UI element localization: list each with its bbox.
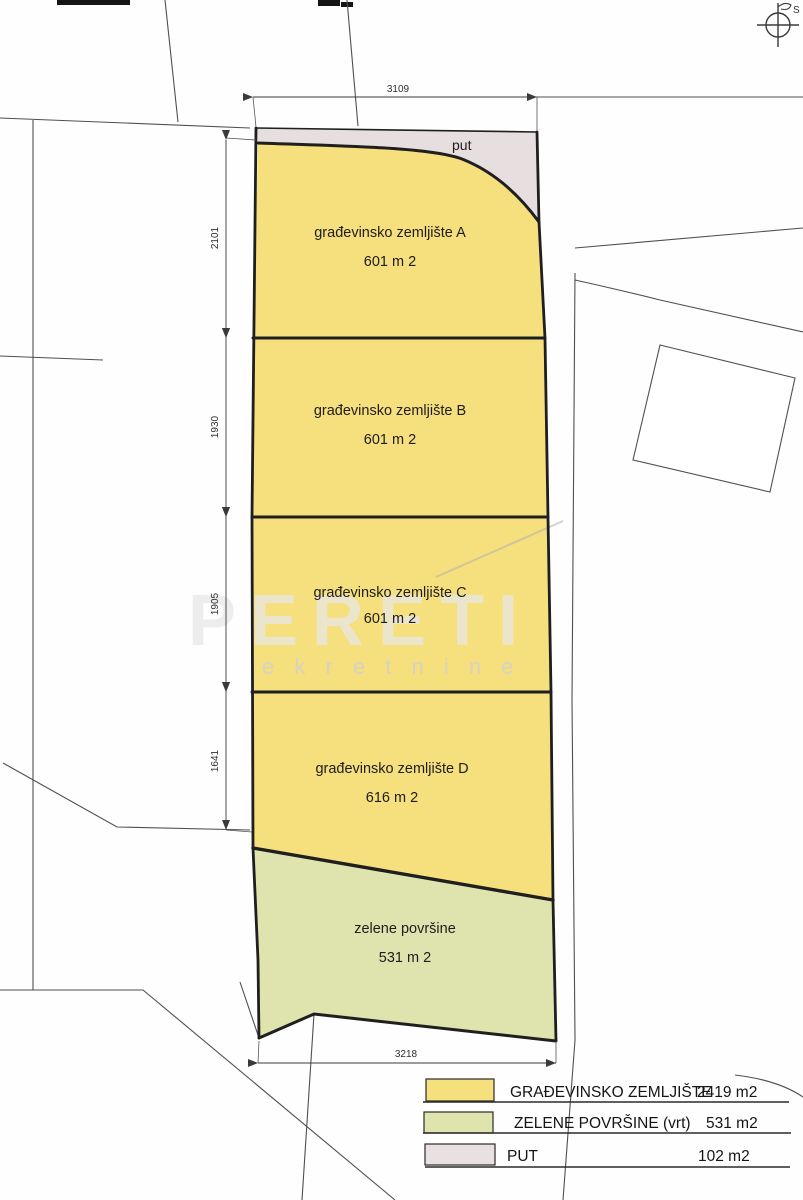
building-outline	[633, 345, 795, 492]
legend-label-green: ZELENE POVRŠINE (vrt)	[514, 1115, 691, 1132]
parcel-d-name: građevinsko zemljište D	[315, 761, 468, 777]
legend-row-building: GRAĐEVINSKO ZEMLJIŠTE 2419 m2	[423, 1079, 789, 1102]
cadastral-map: PERETI e k r e t n i n e	[0, 0, 803, 1200]
north-label: S	[793, 5, 800, 16]
legend-value-building: 2419 m2	[697, 1084, 757, 1101]
scan-marks	[57, 0, 353, 7]
dimension-left-value-b: 1930	[210, 415, 221, 438]
parcel-put-label: put	[452, 137, 472, 153]
legend-value-green: 531 m2	[706, 1115, 758, 1132]
legend-swatch-green	[424, 1112, 493, 1133]
parcel-c-area: 601 m 2	[364, 611, 416, 627]
parcel-b-name: građevinsko zemljište B	[314, 403, 466, 419]
parcel-a-area: 601 m 2	[364, 254, 416, 270]
parcel-b	[252, 338, 548, 517]
parcel-green-name: zelene površine	[354, 921, 456, 937]
parcel-green-area: 531 m 2	[379, 950, 431, 966]
dimension-left-value-d: 1641	[210, 749, 221, 772]
parcel-c-name: građevinsko zemljište C	[313, 585, 466, 601]
legend-label-building: GRAĐEVINSKO ZEMLJIŠTE	[510, 1084, 712, 1101]
legend-label-road: PUT	[507, 1148, 539, 1165]
legend: GRAĐEVINSKO ZEMLJIŠTE 2419 m2 ZELENE POV…	[423, 1079, 791, 1167]
parcel-b-area: 601 m 2	[364, 432, 416, 448]
dimension-bottom-value: 3218	[395, 1049, 418, 1060]
dimension-top-value: 3109	[387, 84, 410, 95]
watermark-subtext: e k r e t n i n e	[262, 654, 520, 679]
cadastral-plan-page: PERETI e k r e t n i n e	[0, 0, 803, 1200]
dimension-left-value-c: 1905	[210, 592, 221, 615]
dimension-left-value-a: 2101	[210, 226, 221, 249]
legend-value-road: 102 m2	[698, 1148, 750, 1165]
parcel-a-name: građevinsko zemljište A	[314, 225, 466, 241]
legend-swatch-building	[426, 1079, 494, 1101]
legend-swatch-road	[425, 1144, 495, 1165]
legend-row-road: PUT 102 m2	[425, 1144, 790, 1167]
parcel-d-area: 616 m 2	[366, 790, 418, 806]
legend-row-green: ZELENE POVRŠINE (vrt) 531 m2	[423, 1112, 791, 1133]
